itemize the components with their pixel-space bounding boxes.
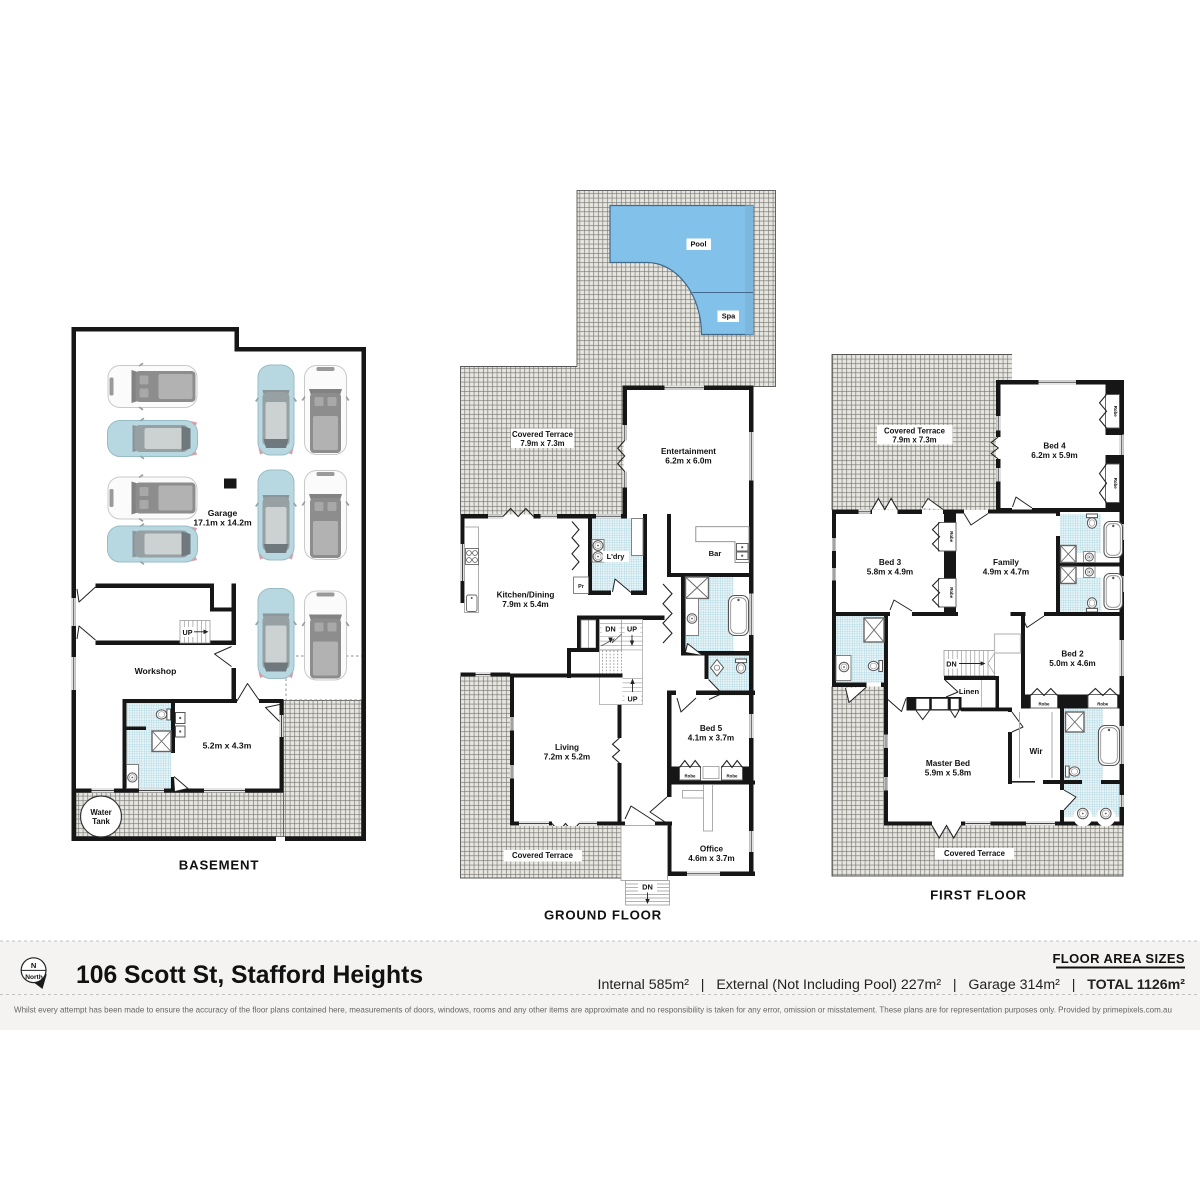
svg-text:N: N <box>31 961 36 970</box>
svg-text:4.6m x 3.7m: 4.6m x 3.7m <box>688 854 734 863</box>
svg-text:Robe: Robe <box>727 774 739 779</box>
svg-text:UP: UP <box>627 625 637 634</box>
svg-text:4.9m x 4.7m: 4.9m x 4.7m <box>983 567 1029 576</box>
svg-text:5.9m x 5.8m: 5.9m x 5.8m <box>925 768 971 777</box>
svg-text:Whilst every attempt has been: Whilst every attempt has been made to en… <box>14 1005 1172 1015</box>
svg-text:4.1m x 3.7m: 4.1m x 3.7m <box>688 733 734 742</box>
svg-text:Robe: Robe <box>1097 702 1109 707</box>
svg-text:Bed 2: Bed 2 <box>1061 650 1084 659</box>
svg-text:5.8m x 4.9m: 5.8m x 4.9m <box>867 567 913 576</box>
svg-text:North: North <box>25 974 43 981</box>
svg-text:Internal 585m² | External: Internal 585m² | External (Not Including… <box>598 977 1186 993</box>
svg-text:6.2m x 5.9m: 6.2m x 5.9m <box>1031 451 1077 460</box>
svg-text:Covered Terrace: Covered Terrace <box>944 849 1006 858</box>
svg-text:UP: UP <box>628 695 638 704</box>
svg-text:Family: Family <box>993 558 1019 567</box>
svg-text:UP: UP <box>183 628 193 637</box>
svg-text:Water: Water <box>90 808 111 817</box>
svg-text:GROUND FLOOR: GROUND FLOOR <box>544 908 662 923</box>
svg-text:FLOOR AREA SIZES: FLOOR AREA SIZES <box>1052 951 1185 966</box>
svg-text:7.9m x 5.4m: 7.9m x 5.4m <box>502 600 548 609</box>
svg-text:Master Bed: Master Bed <box>926 759 970 768</box>
svg-text:DN: DN <box>642 883 653 892</box>
svg-text:Robe: Robe <box>1039 702 1051 707</box>
svg-text:Tank: Tank <box>92 817 110 826</box>
svg-text:Entertainment: Entertainment <box>661 447 716 456</box>
svg-text:Garage: Garage <box>208 508 238 518</box>
svg-text:Covered Terrace: Covered Terrace <box>512 851 574 860</box>
svg-text:106 Scott St, Stafford Heights: 106 Scott St, Stafford Heights <box>76 962 423 989</box>
svg-text:DN: DN <box>605 625 615 634</box>
svg-text:Wir: Wir <box>1029 747 1043 756</box>
svg-text:Spa: Spa <box>722 312 736 321</box>
svg-text:Bar: Bar <box>709 549 722 558</box>
svg-text:Pool: Pool <box>690 240 706 249</box>
svg-text:Robe: Robe <box>685 774 697 779</box>
svg-text:7.9m x 7.3m: 7.9m x 7.3m <box>892 435 936 444</box>
svg-text:BASEMENT: BASEMENT <box>179 858 259 873</box>
svg-text:FIRST FLOOR: FIRST FLOOR <box>930 888 1027 903</box>
svg-text:Bed 4: Bed 4 <box>1043 442 1066 451</box>
svg-text:7.2m x 5.2m: 7.2m x 5.2m <box>544 752 590 761</box>
svg-text:DN: DN <box>946 660 956 669</box>
svg-text:Bed 3: Bed 3 <box>879 558 902 567</box>
svg-text:Office: Office <box>700 845 724 854</box>
svg-text:Kitchen/Dining: Kitchen/Dining <box>497 591 555 600</box>
svg-text:Linen: Linen <box>959 687 980 696</box>
svg-text:Bed 5: Bed 5 <box>700 724 723 733</box>
svg-text:Pr: Pr <box>578 584 585 590</box>
svg-text:5.2m x 4.3m: 5.2m x 4.3m <box>203 741 252 751</box>
svg-text:6.2m x 6.0m: 6.2m x 6.0m <box>665 456 711 465</box>
svg-text:Workshop: Workshop <box>135 666 177 676</box>
svg-text:Robe: Robe <box>949 587 954 599</box>
svg-text:Covered Terrace: Covered Terrace <box>512 430 574 439</box>
svg-text:5.0m x 4.6m: 5.0m x 4.6m <box>1049 659 1095 668</box>
svg-text:L'dry: L'dry <box>607 552 626 561</box>
svg-text:Living: Living <box>555 743 579 752</box>
svg-text:Covered Terrace: Covered Terrace <box>884 427 946 436</box>
svg-text:Robe: Robe <box>949 531 954 543</box>
svg-text:17.1m x 14.2m: 17.1m x 14.2m <box>193 518 252 528</box>
svg-text:Robe: Robe <box>1113 406 1118 418</box>
svg-text:Robe: Robe <box>1113 478 1118 490</box>
svg-text:7.9m x 7.3m: 7.9m x 7.3m <box>520 439 564 448</box>
